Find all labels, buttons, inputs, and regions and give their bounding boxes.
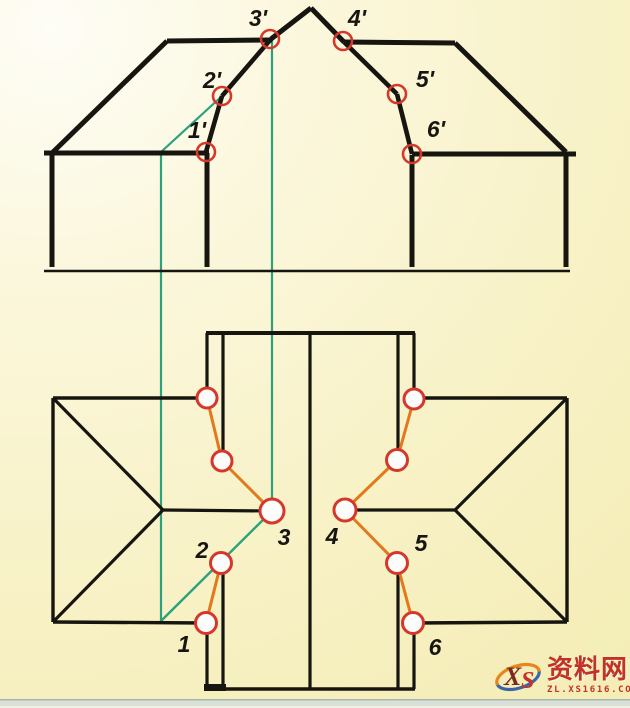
plan-point-marker (334, 499, 356, 521)
plan-point-label: 5 (415, 530, 429, 556)
front-view-edge (222, 39, 271, 96)
front-point-label: 6' (427, 116, 447, 142)
plan-view-edge (53, 398, 163, 510)
watermark-letter-x: X (503, 662, 522, 691)
front-view-layer (44, 8, 576, 271)
front-view-edge (311, 8, 344, 42)
plan-point-marker (403, 613, 424, 634)
plan-point-marker (387, 553, 408, 574)
plan-point-marker (197, 388, 217, 408)
plan-view-layer (53, 333, 567, 689)
plan-point-marker (212, 451, 232, 471)
plan-point-marker (211, 553, 232, 574)
watermark-logo-icon: X S (490, 652, 546, 700)
plan-point-marker (196, 613, 217, 634)
drawing-canvas: 1'2'3'4'5'6'123456 X S 资料网 ZL.XS1616.COM (0, 0, 630, 708)
watermark: X S 资料网 ZL.XS1616.COM (490, 652, 630, 700)
footer-band (0, 699, 630, 708)
plan-point-label: 3 (278, 524, 291, 550)
plan-view-edge (455, 398, 567, 510)
front-point-label: 5' (416, 66, 436, 92)
plan-view-edge (455, 510, 567, 622)
plan-point-marker (260, 499, 284, 523)
plan-view-edge (53, 622, 206, 623)
plan-view-edge (413, 622, 567, 623)
front-view-edge (167, 40, 272, 41)
front-point-label: 2' (202, 67, 223, 93)
front-view-edge (52, 41, 167, 153)
watermark-site-url: ZL.XS1616.COM (547, 685, 630, 695)
plan-point-label: 1 (178, 631, 191, 657)
watermark-letter-s: S (521, 668, 534, 694)
front-view-edge (344, 42, 397, 94)
front-point-label: 3' (249, 5, 269, 31)
plan-view-edge (53, 510, 163, 622)
watermark-brand-text: 资料网 (547, 657, 628, 684)
plan-point-marker (404, 389, 424, 409)
plan-point-marker (387, 450, 408, 471)
plan-point-label: 6 (429, 634, 442, 660)
construction-lines-layer (161, 40, 272, 621)
front-point-label: 4' (347, 5, 368, 31)
plan-view-edge (163, 510, 272, 511)
front-point-label: 1' (188, 117, 208, 143)
plan-point-label: 2 (195, 537, 209, 563)
plan-point-label: 4 (325, 523, 339, 549)
front-view-edge (344, 42, 455, 43)
diagram-svg: 1'2'3'4'5'6'123456 (0, 0, 630, 708)
front-view-edge (455, 43, 566, 152)
